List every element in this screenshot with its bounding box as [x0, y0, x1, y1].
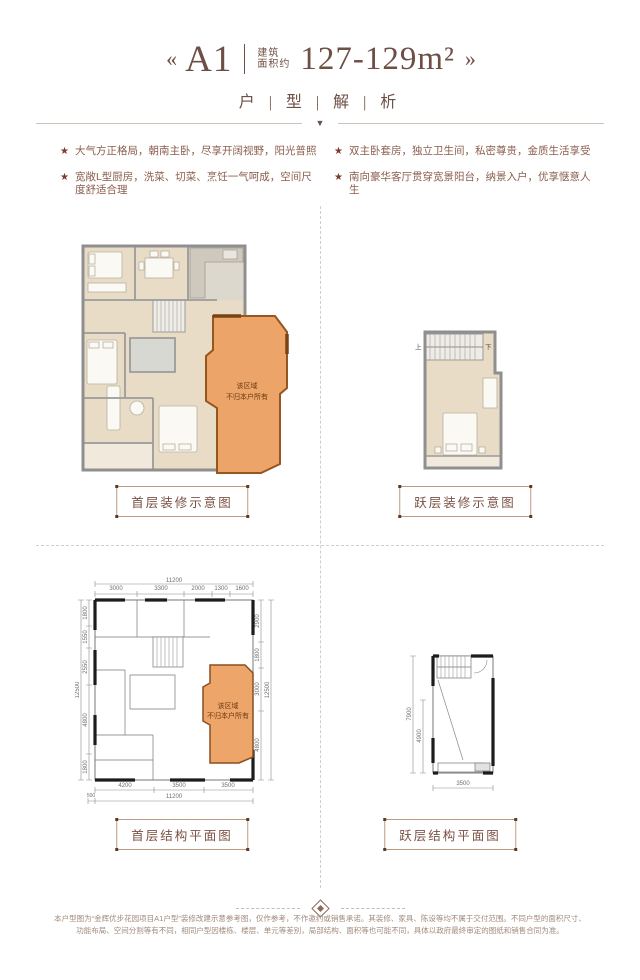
feature-item: ★ 大气方正格局，朝南主卧，尽享开阔视野，阳光普照	[60, 145, 318, 158]
page-title: « A1 建筑 面积约 127-129m² »	[0, 36, 640, 82]
divider-line	[36, 123, 302, 124]
disclaimer-line1: 本户型图为“金辉优步花园项目A1户型”装修改建示意参考图，仅作参考，不作邀约或销…	[0, 913, 640, 925]
svg-text:1550: 1550	[83, 630, 89, 644]
stairs	[153, 637, 183, 667]
ornament-dash	[236, 908, 300, 909]
corner-dot	[115, 848, 118, 851]
svg-text:3300: 3300	[154, 586, 168, 592]
corner-dot	[115, 515, 118, 518]
feature-text: 南向豪华客厅贯穿宽景阳台，纳景入户，优享惬意人生	[349, 171, 592, 197]
svg-text:1600: 1600	[235, 586, 249, 592]
decor-main-floorplan: 该区域 不归本户所有	[75, 238, 310, 483]
svg-text:2900: 2900	[255, 614, 261, 628]
area-value: 127-129m²	[300, 41, 455, 78]
not-owned-zone: 该区域 不归本户所有	[206, 316, 287, 473]
corner-dot	[115, 818, 118, 821]
star-icon: ★	[334, 171, 343, 197]
svg-text:1800: 1800	[83, 760, 89, 774]
triangle-down-icon: ▼	[316, 118, 325, 128]
svg-text:2000: 2000	[191, 586, 205, 592]
bath-floor	[130, 338, 175, 372]
area-prefix-bottom: 面积约	[257, 59, 290, 70]
stair-down-label: 下	[485, 343, 492, 351]
corner-dot	[246, 485, 249, 488]
corner-dot	[514, 818, 517, 821]
unit-name: A1	[185, 38, 232, 81]
svg-text:11200: 11200	[166, 794, 183, 800]
loft-balcony-floor	[425, 456, 501, 468]
header-divider: ▼	[36, 118, 604, 128]
area-prefix-top: 建筑	[257, 48, 290, 59]
feature-text: 宽敞L型厨房，洗菜、切菜、烹饪一气呵成，空间尺度舒适合理	[75, 171, 318, 197]
svg-text:3500: 3500	[221, 783, 235, 789]
struct-main-plan-drawing: 11200 3000 3300 2000 1300 1600 12500 180…	[75, 575, 305, 815]
struct-main-floorplan: 11200 3000 3300 2000 1300 1600 12500 180…	[75, 575, 305, 815]
struct-loft-plan-drawing: 7900 4900 3500	[405, 648, 505, 808]
svg-text:11200: 11200	[166, 578, 183, 584]
svg-text:2550: 2550	[83, 660, 89, 674]
corner-dot	[398, 485, 401, 488]
not-owned-text: 该区域	[218, 701, 239, 710]
decor-loft-floorplan: 上 下	[413, 318, 508, 483]
svg-text:3000: 3000	[255, 682, 261, 696]
svg-text:1800: 1800	[83, 606, 89, 620]
struct-loft-label: 跃层结构平面图	[384, 819, 516, 850]
svg-text:3500: 3500	[456, 781, 470, 787]
corner-dot	[246, 848, 249, 851]
balcony-floor	[83, 443, 153, 470]
svg-text:4200: 4200	[118, 783, 132, 789]
feature-item: ★ 宽敞L型厨房，洗菜、切菜、烹饪一气呵成，空间尺度舒适合理	[60, 171, 318, 197]
corner-dot	[514, 848, 517, 851]
not-owned-text: 不归本户所有	[207, 711, 249, 720]
svg-text:4800: 4800	[255, 738, 261, 752]
decor-main-label-text: 首层装修示意图	[131, 496, 233, 510]
feature-text: 双主卧套房，独立卫生间，私密尊贵，金质生活享受	[349, 145, 591, 158]
decor-main-plan-drawing: 该区域 不归本户所有	[75, 238, 310, 483]
corner-dot	[383, 818, 386, 821]
struct-loft-floorplan: 7900 4900 3500	[405, 648, 505, 808]
feature-text: 大气方正格局，朝南主卧，尽享开阔视野，阳光普照	[75, 145, 317, 158]
not-owned-text: 该区域	[237, 381, 258, 390]
star-icon: ★	[334, 145, 343, 158]
decor-loft-label-text: 跃层装修示意图	[414, 496, 516, 510]
decor-loft-label: 跃层装修示意图	[399, 486, 531, 517]
decor-main-label: 首层装修示意图	[116, 486, 248, 517]
not-owned-text: 不归本户所有	[226, 392, 268, 401]
feature-item: ★ 南向豪华客厅贯穿宽景阳台，纳景入户，优享惬意人生	[334, 171, 592, 197]
svg-text:12500: 12500	[75, 681, 81, 698]
double-arrow-left-icon: «	[166, 46, 175, 72]
struct-main-label-text: 首层结构平面图	[131, 829, 233, 843]
struct-main-label: 首层结构平面图	[116, 819, 248, 850]
ac-platform	[475, 763, 490, 771]
stairs	[425, 334, 483, 360]
area-prefix: 建筑 面积约	[257, 48, 290, 70]
corner-dot	[383, 848, 386, 851]
svg-text:4800: 4800	[83, 713, 89, 727]
svg-text:12500: 12500	[265, 681, 271, 698]
stair-up-label: 上	[415, 342, 422, 351]
corner-dot	[529, 515, 532, 518]
decor-loft-plan-drawing: 上 下	[413, 318, 508, 483]
double-arrow-right-icon: »	[465, 46, 474, 72]
svg-text:1800: 1800	[255, 648, 261, 662]
svg-text:3000: 3000	[109, 586, 123, 592]
star-icon: ★	[60, 171, 69, 197]
svg-text:3500: 3500	[172, 783, 186, 789]
star-icon: ★	[60, 145, 69, 158]
not-owned-zone: 该区域 不归本户所有	[203, 665, 253, 763]
subtitle: 户 | 型 | 解 | 析	[0, 88, 640, 112]
stairs	[153, 300, 185, 332]
feature-list: ★ 大气方正格局，朝南主卧，尽享开阔视野，阳光普照 ★ 双主卧套房，独立卫生间，…	[60, 145, 592, 197]
floorplan-flyer: « A1 建筑 面积约 127-129m² » 户 | 型 | 解 | 析 ▼ …	[0, 0, 640, 980]
ornament-dash	[341, 908, 405, 909]
svg-text:7900: 7900	[407, 707, 413, 721]
divider-line	[338, 123, 604, 124]
vertical-dashed-divider	[320, 206, 321, 888]
svg-text:500: 500	[87, 793, 96, 799]
svg-text:4900: 4900	[417, 729, 423, 743]
corner-dot	[246, 818, 249, 821]
corner-dot	[398, 515, 401, 518]
stairs	[437, 656, 471, 678]
disclaimer-line2: 功能布局、空间分割等有不同，相同户型因楼栋、楼层、单元等差别，局部结构、面积等也…	[0, 925, 640, 937]
horizontal-dashed-divider	[36, 545, 604, 546]
svg-text:1300: 1300	[214, 586, 228, 592]
corner-dot	[529, 485, 532, 488]
kitchen-sink	[223, 250, 237, 259]
title-divider	[244, 44, 245, 74]
feature-item: ★ 双主卧套房，独立卫生间，私密尊贵，金质生活享受	[334, 145, 592, 158]
disclaimer: 本户型图为“金辉优步花园项目A1户型”装修改建示意参考图，仅作参考，不作邀约或销…	[0, 913, 640, 937]
struct-loft-label-text: 跃层结构平面图	[399, 829, 501, 843]
corner-dot	[115, 485, 118, 488]
corner-dot	[246, 515, 249, 518]
